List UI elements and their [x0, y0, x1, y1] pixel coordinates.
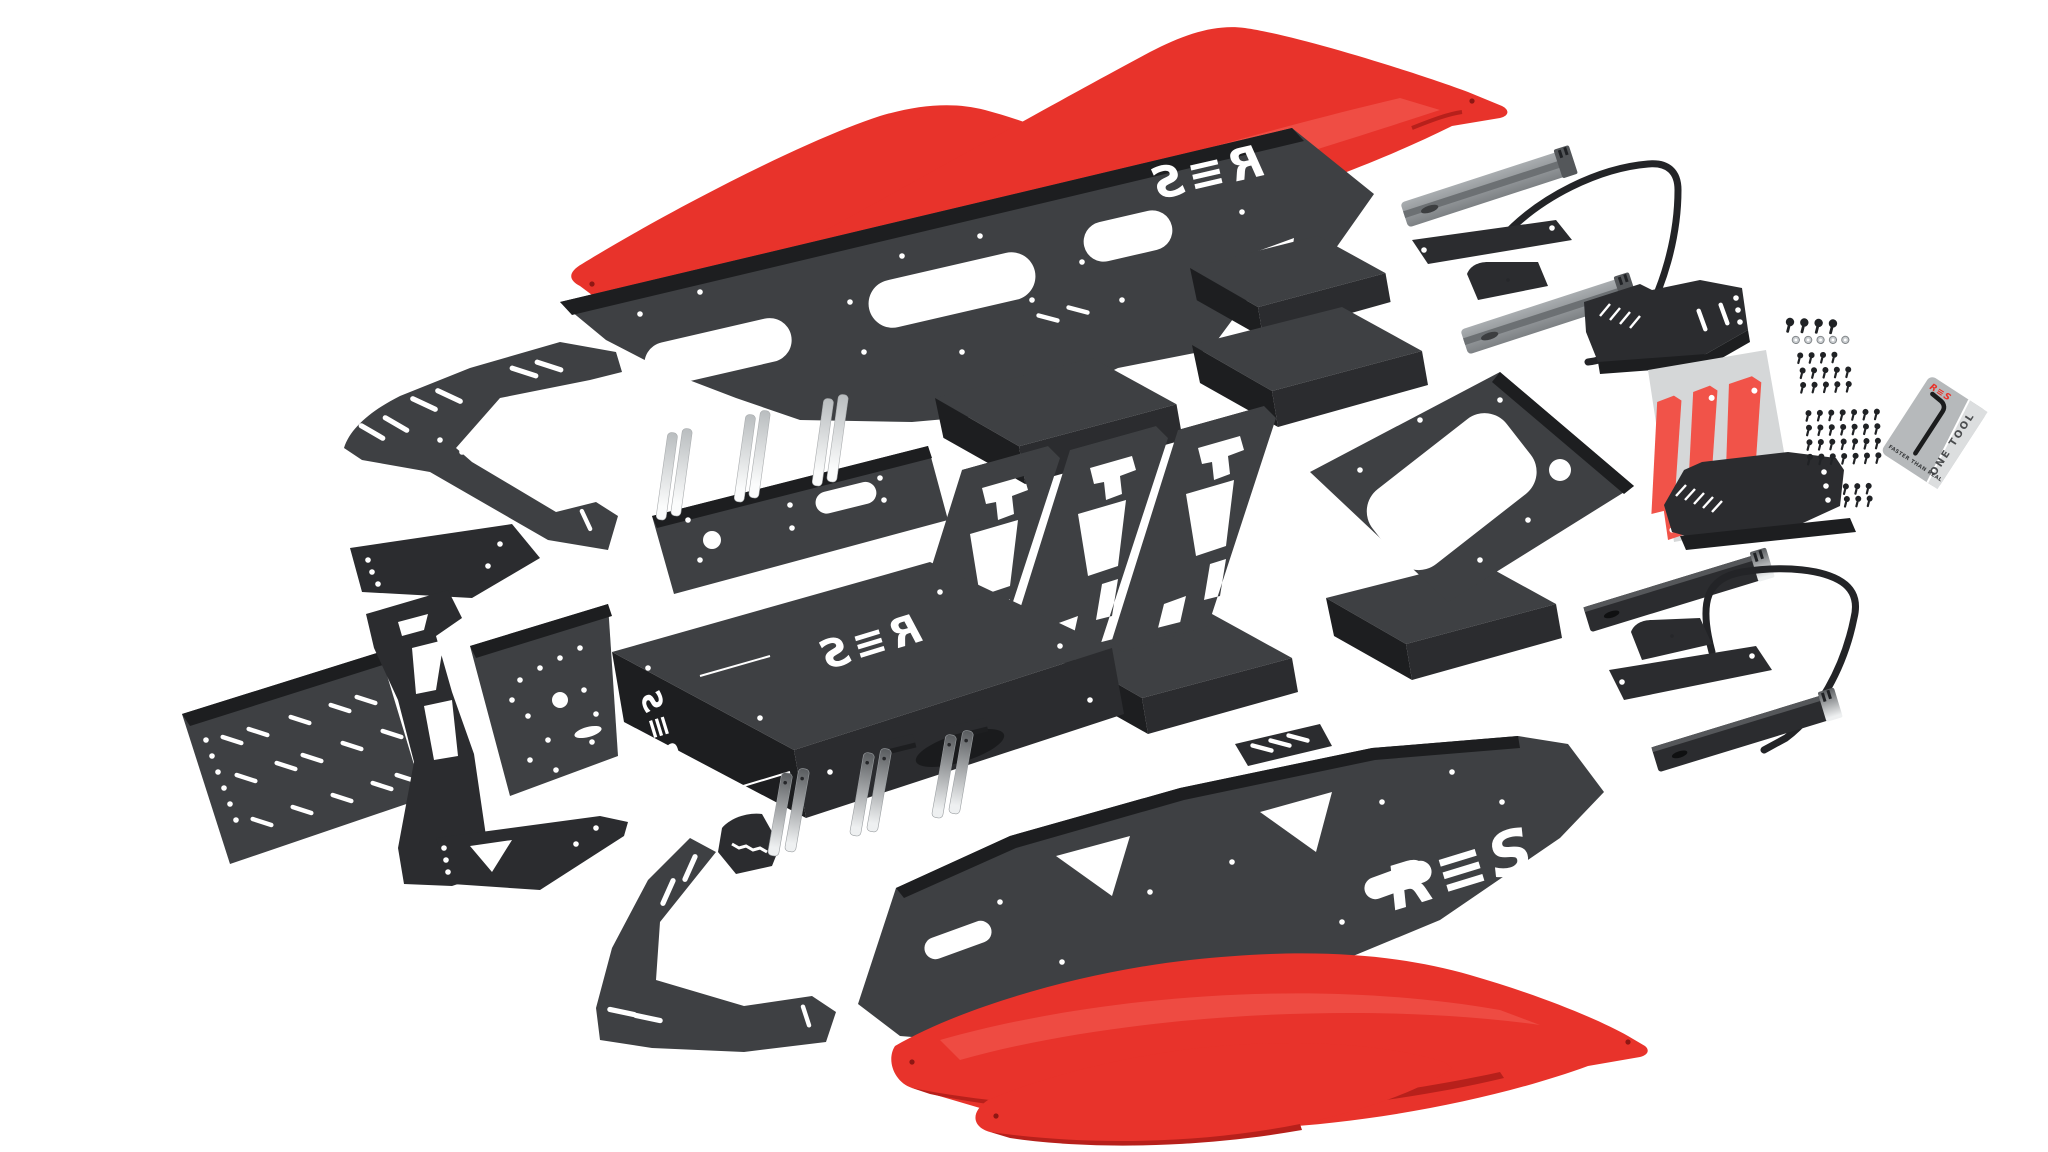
floor-plate	[1310, 372, 1634, 602]
seat-side-mount-bracket-right	[1664, 452, 1856, 550]
hardware-row-washers	[1791, 324, 1849, 356]
seat-base-plate-top	[1412, 220, 1572, 264]
seat-base-plate-right	[1609, 646, 1772, 700]
render-canvas: R≡S R≡S R≡S	[0, 0, 2048, 1152]
accessory-panel	[470, 604, 618, 796]
seat-slider-rail-top-1	[1399, 145, 1578, 229]
hex-key-tool-card: ONE TOOL R≡S FASTER THAN REAL	[1880, 375, 1987, 489]
perforated-base-plate	[182, 652, 424, 864]
side-arm-plate-upper	[344, 342, 622, 550]
side-arm-plate-lower	[596, 838, 836, 1052]
exploded-view-render: R≡S R≡S R≡S	[0, 0, 2048, 1152]
seat-slider-rail-right-2	[1650, 687, 1843, 773]
hardware-row-small-screws	[1838, 477, 1876, 514]
seat-base-wing-bracket	[350, 524, 540, 598]
seat-base-cover-right	[1631, 618, 1712, 660]
seat-base-cover-top	[1467, 262, 1548, 300]
